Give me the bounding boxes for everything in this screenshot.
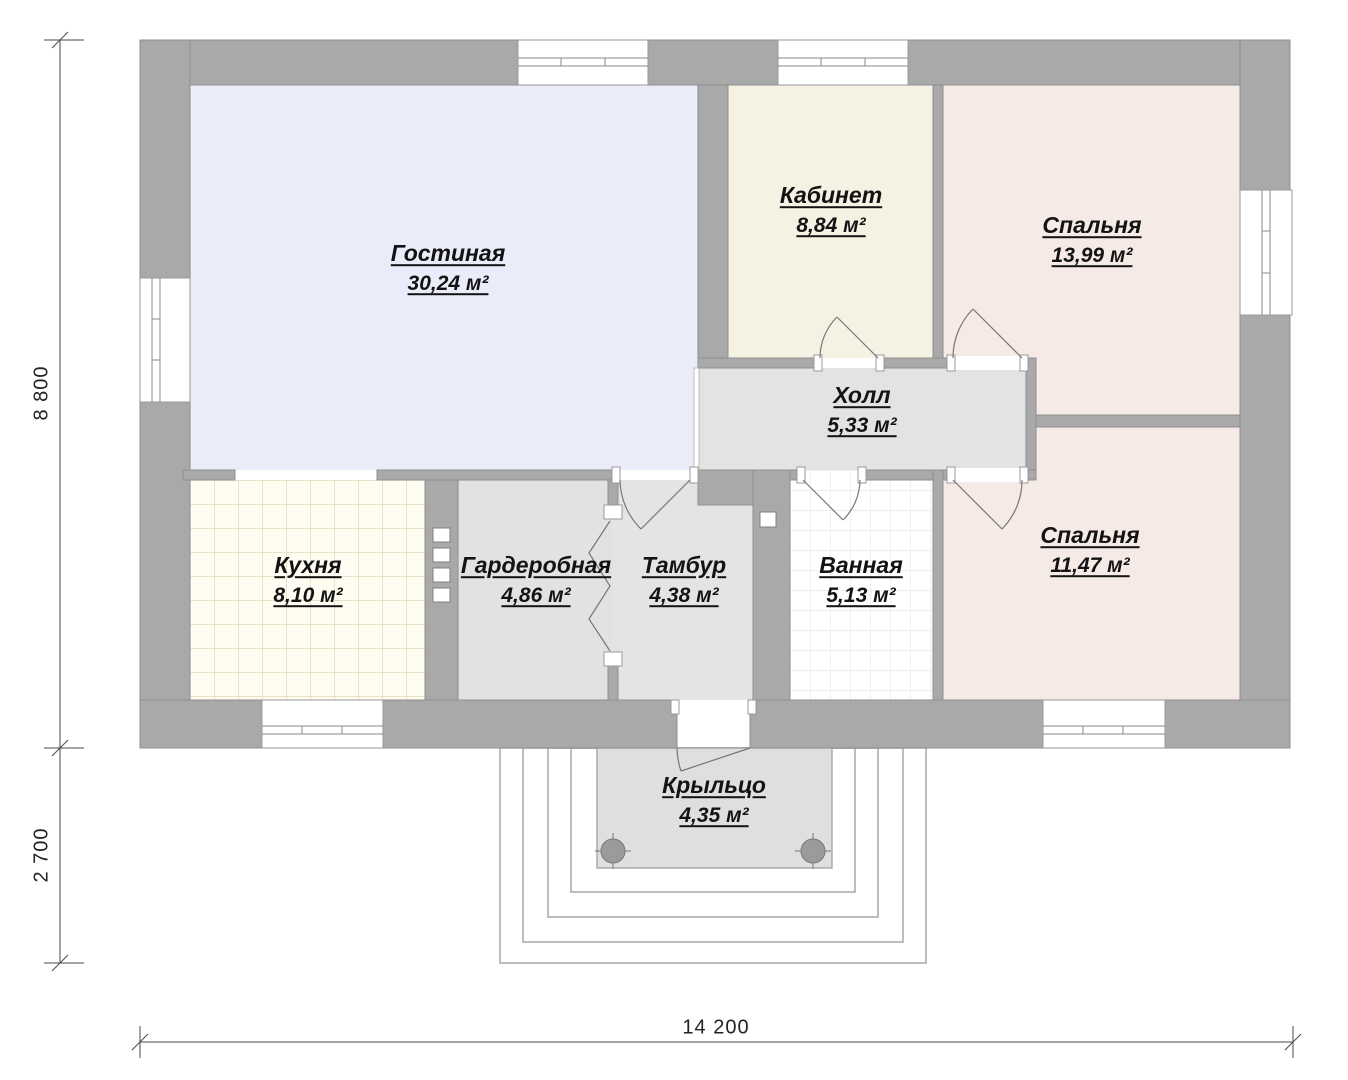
dimension-main-depth: 8 800 [31,365,54,420]
wall [383,700,677,748]
room-name: Тамбур [642,549,726,581]
room-label-wardrobe: Гардеробная 4,86 м² [461,549,611,611]
vent-icon [760,512,776,527]
room-label-kitchen: Кухня 8,10 м² [273,549,342,611]
room-area: 30,24 м² [391,269,506,298]
room-label-bedroom1: Спальня 13,99 м² [1042,209,1141,271]
room-area: 4,35 м² [662,801,766,830]
wall-wardrobe-vestibule [608,665,618,700]
room-area: 8,10 м² [273,581,342,610]
wall-hall-top [882,358,949,368]
room-name: Спальня [1040,519,1139,551]
room-area: 4,38 м² [642,581,726,610]
wall-living-office [698,85,728,365]
vent-icon [433,568,450,582]
vent-icon [433,548,450,562]
floor-plan-drawing [0,0,1348,1080]
room-label-bedroom2: Спальня 11,47 м² [1040,519,1139,581]
room-label-bathroom: Ванная 5,13 м² [819,549,903,611]
wall [1240,40,1290,190]
hall-opening-cap [694,368,699,470]
wall [750,700,1043,748]
window-bedroom2-bottom [1043,700,1165,748]
window-living-left [140,278,190,402]
wall [140,40,190,278]
room-name: Кухня [273,549,342,581]
window-living-top [518,40,648,85]
wall-bathroom-bedroom2 [933,470,943,700]
room-name: Кабинет [780,179,882,211]
window-kitchen-bottom [262,700,383,748]
wall-office-bedroom1 [933,85,943,358]
wall-vestibule-bathroom [753,470,790,700]
room-label-vestibule: Тамбур 4,38 м² [642,549,726,611]
room-name: Спальня [1042,209,1141,241]
room-label-office: Кабинет 8,84 м² [780,179,882,241]
room-label-porch: Крыльцо 4,35 м² [662,769,766,831]
dimension-overall-width: 14 200 [682,1017,749,1040]
window-bedroom1-right [1240,190,1292,315]
window-office-top [778,40,908,85]
room-name: Гостиная [391,237,506,269]
room-name: Холл [827,379,896,411]
vent-icon [433,588,450,602]
wall-hall-end [1026,358,1036,480]
wall-kitchen-top [377,470,614,480]
wall-hall-top [698,358,816,368]
wall-between-bedrooms [1036,415,1240,427]
room-label-hall: Холл 5,33 м² [827,379,896,441]
room-name: Крыльцо [662,769,766,801]
room-name: Гардеробная [461,549,611,581]
wall [648,40,778,85]
room-area: 8,84 м² [780,211,882,240]
room-area: 4,86 м² [461,581,611,610]
room-area: 13,99 м² [1042,241,1141,270]
dimension-porch-depth: 2 700 [31,827,54,882]
wall [1240,315,1290,748]
room-area: 11,47 м² [1040,551,1139,580]
room-area: 5,13 м² [819,581,903,610]
porch-column [601,839,625,863]
vent-icon [433,528,450,542]
wall [140,40,518,85]
wall [140,700,262,748]
wall [1165,700,1290,748]
porch-column [801,839,825,863]
room-label-living: Гостиная 30,24 м² [391,237,506,299]
wall-vestibule-notch [698,470,753,505]
wall-kitchen-top [183,470,235,480]
wall [908,40,1290,85]
room-name: Ванная [819,549,903,581]
wall [140,402,190,748]
floor-plan-page: Гостиная 30,24 м² Кабинет 8,84 м² Спальн… [0,0,1348,1080]
room-area: 5,33 м² [827,411,896,440]
